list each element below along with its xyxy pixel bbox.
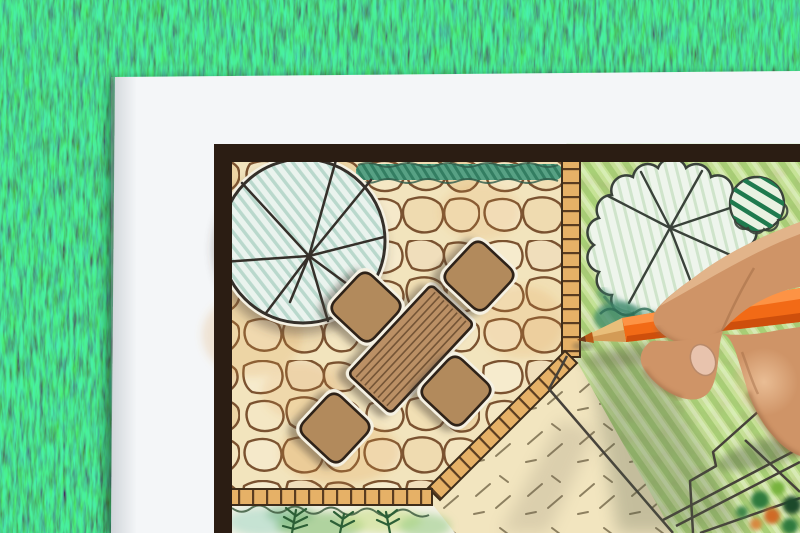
top-hedge <box>356 163 562 183</box>
garden-plan-photo <box>0 0 800 533</box>
knuckle-highlight <box>730 348 798 416</box>
paper-edge-shading <box>111 77 137 533</box>
planting-bed <box>228 505 455 533</box>
scene-canvas <box>0 0 800 533</box>
edging-right-band <box>562 161 580 357</box>
edging-bottom-band <box>231 489 432 505</box>
